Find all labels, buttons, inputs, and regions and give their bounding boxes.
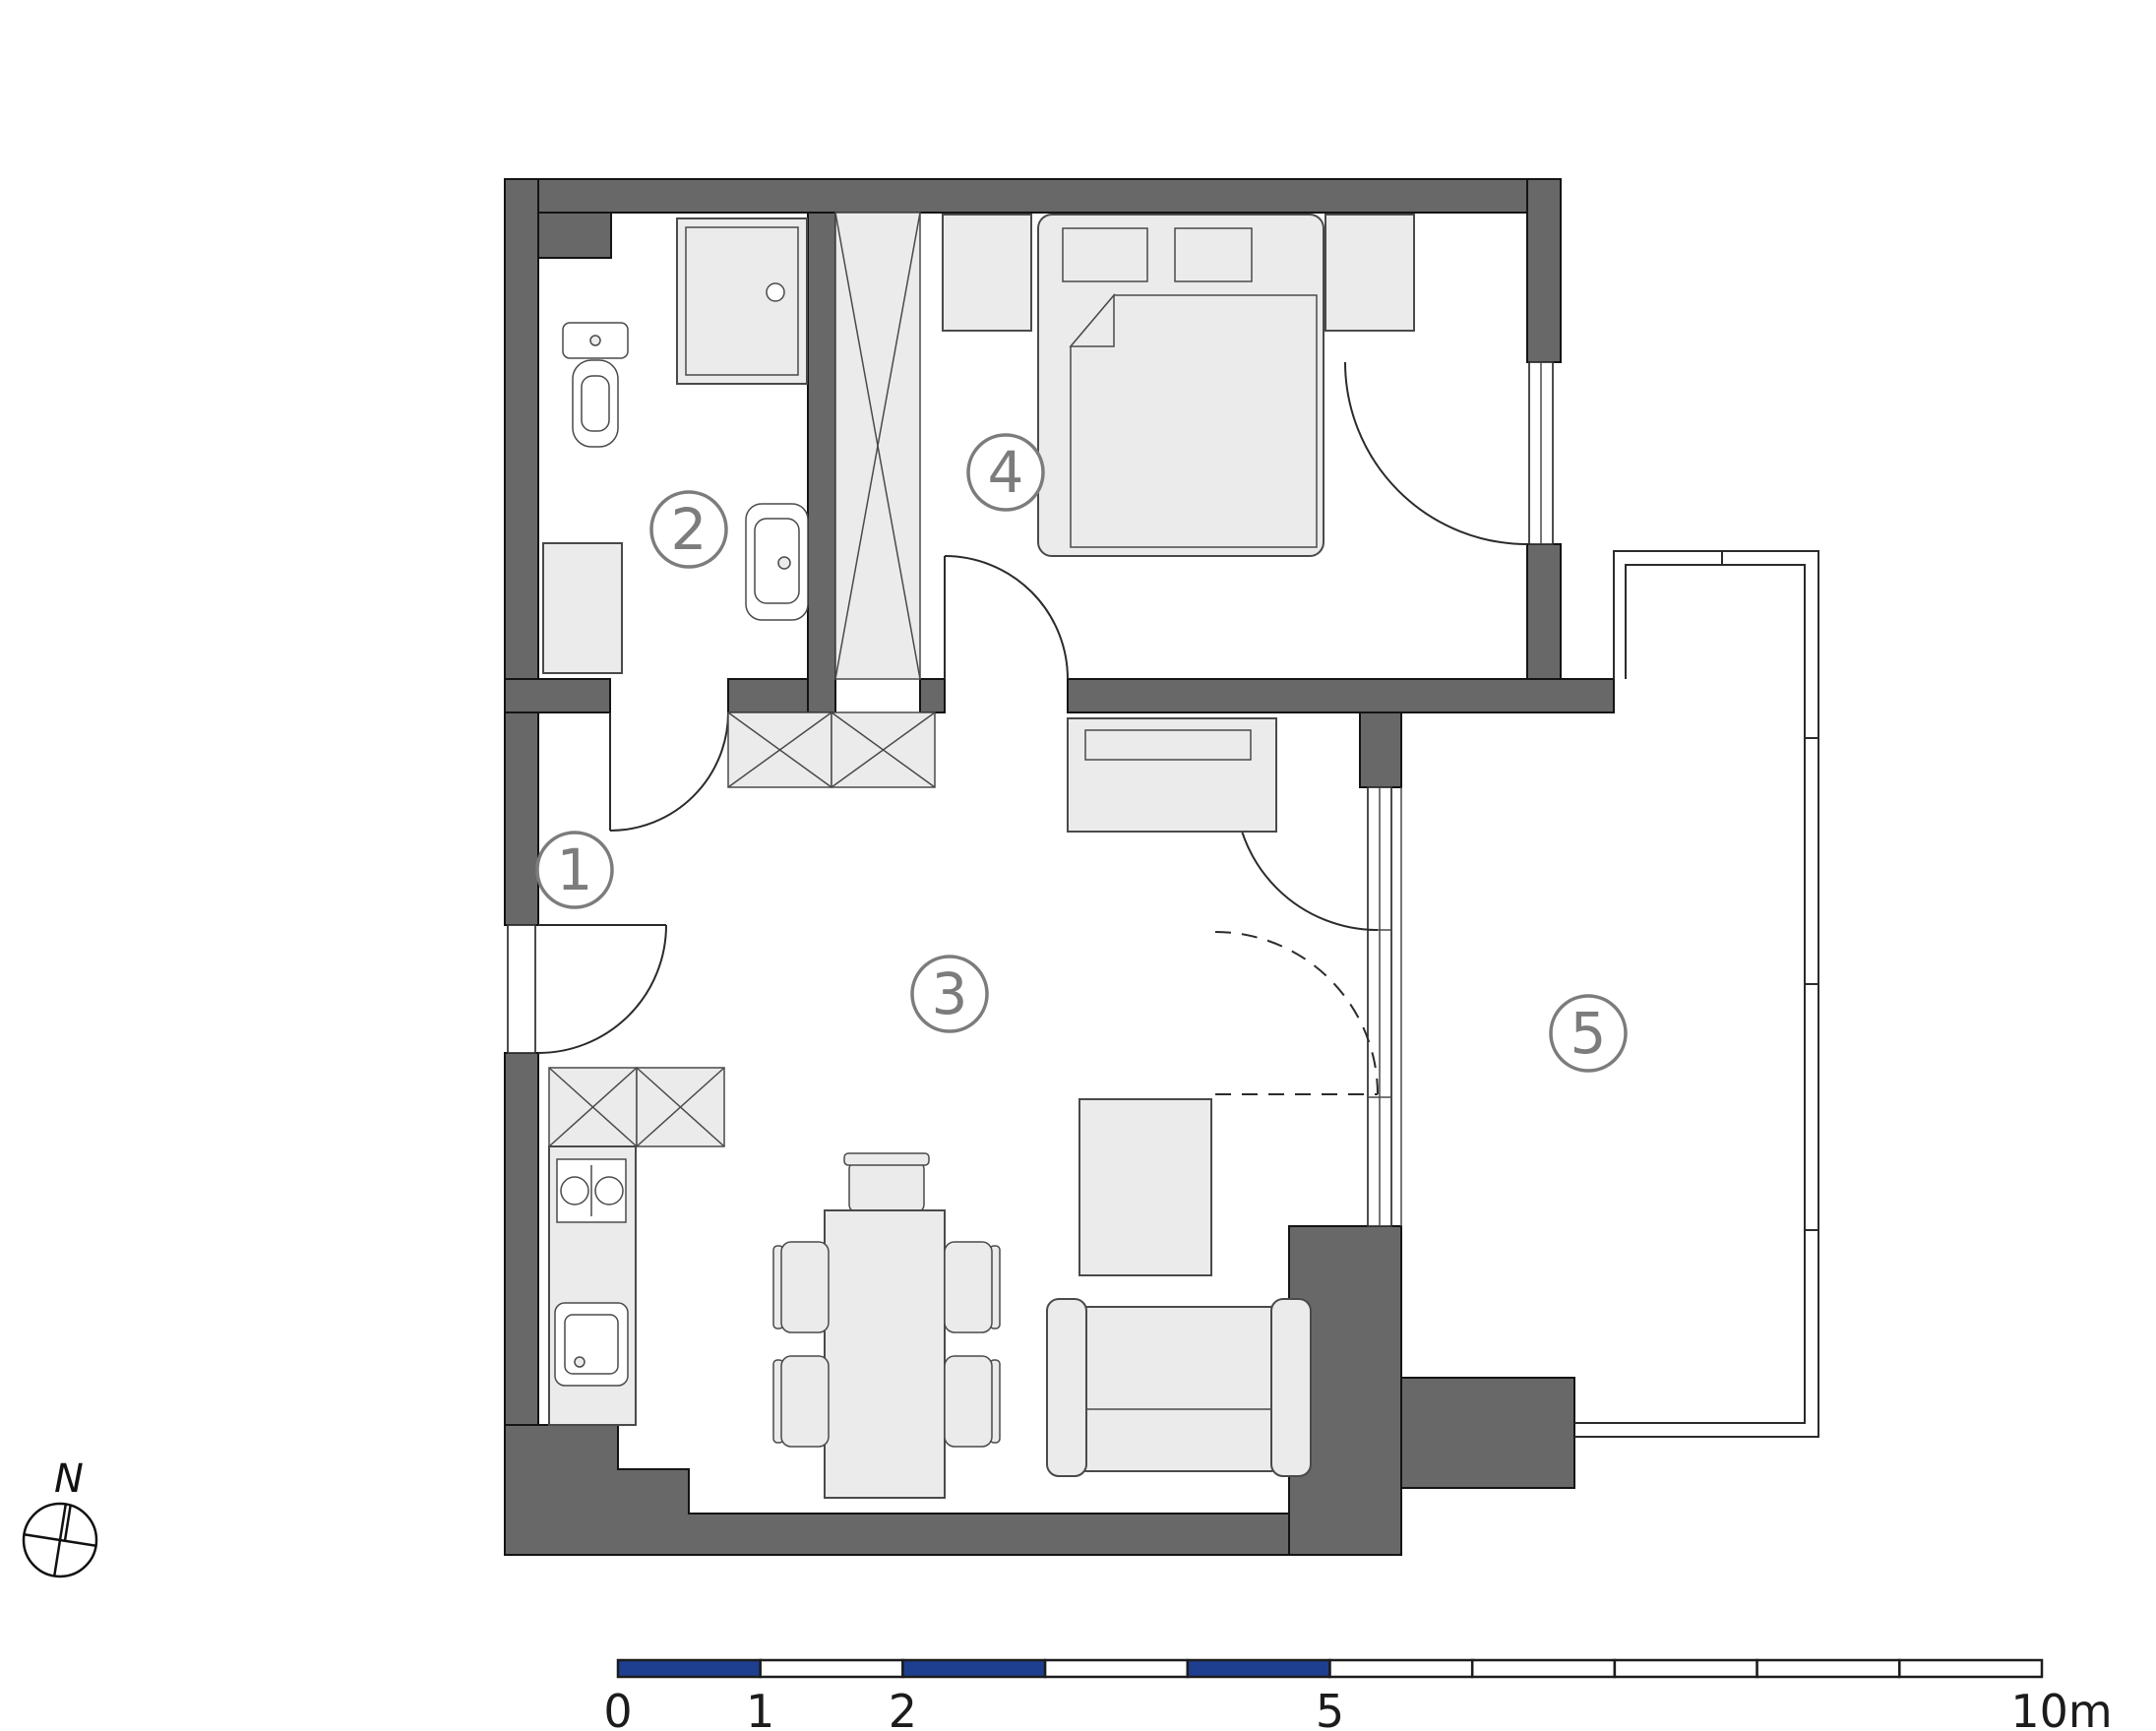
bedroom-balcony-window-frame [1529,362,1553,544]
cabinet-hatched-right [832,712,935,787]
scale-bar: 012510m [603,1660,2112,1731]
scale-segment [1188,1660,1330,1677]
wall-living-right-upper [1360,712,1401,787]
scale-segment [761,1660,903,1677]
wall-bottom-right-ext [1401,1378,1574,1488]
kitchen [549,1068,724,1425]
scale-label-1: 1 [746,1685,774,1731]
scale-segment [1472,1660,1615,1677]
floor-plan-drawing: 1 2 3 4 5 N 012510m [0,0,2156,1731]
upper-cabinets-hatched [549,1068,724,1146]
wall-bedroom-bottom-right [1068,679,1614,712]
scale-segment [902,1660,1045,1677]
wall-bath-bottom-left [505,679,610,712]
pillow-left [1063,228,1147,281]
room-number-4: 4 [988,439,1024,506]
room-number-1: 1 [557,836,593,903]
scale-segment [618,1660,761,1677]
chair [773,1242,829,1332]
scale-label-0: 0 [603,1685,632,1731]
bathroom-fixtures [543,218,808,673]
dining-set [773,1153,1000,1498]
scale-segment [1045,1660,1188,1677]
bedroom-door [945,556,1068,679]
chair [773,1356,829,1447]
room-badge-2: 2 [651,492,726,567]
floor-plan-page: 1 2 3 4 5 N 012510m [0,0,2156,1731]
nightstand-left [943,215,1031,331]
room-number-3: 3 [932,960,968,1027]
head-chair [844,1153,929,1212]
room-badge-5: 5 [1551,996,1626,1071]
scale-label-2: 2 [889,1685,917,1731]
pillow-right [1175,228,1252,281]
washing-machine [543,543,622,673]
wall-left-upper [505,179,538,925]
room-number-5: 5 [1571,1000,1607,1067]
hob [557,1159,626,1222]
sofa [1047,1299,1311,1476]
washbasin [746,504,808,620]
wall-bath-bottom-right [728,679,808,712]
wall-bath-niche [538,213,611,258]
room-badge-3: 3 [912,957,987,1031]
wall-top [505,179,1561,213]
wall-right-upper [1527,179,1561,362]
shower [677,218,807,384]
compass: N [19,1456,102,1581]
double-bed [1038,215,1324,556]
cabinet-hatched-left [728,712,832,787]
wardrobe-tall [835,213,920,679]
dining-table [825,1210,945,1498]
scale-segment [1330,1660,1473,1677]
living-balcony-door-dashed [1215,932,1378,1094]
living-balcony-window-frame [1368,787,1401,1226]
room-badge-4: 4 [968,435,1043,510]
kitchen-sink [555,1303,628,1386]
room-number-2: 2 [671,496,708,563]
sideboard [1068,718,1276,832]
scale-segment [1899,1660,2042,1677]
scale-segment [1757,1660,1900,1677]
toilet [563,323,628,447]
wall-right-mid [1527,544,1561,679]
coffee-table [1079,1099,1211,1275]
scale-label-10m: 10m [2010,1685,2112,1731]
bathroom-door [610,712,728,831]
entrance-door [538,925,666,1053]
living-furniture [773,718,1311,1498]
bedroom-balcony-door [1345,362,1527,544]
chair [945,1242,1000,1332]
wall-bedroom-bottom-left [920,679,945,712]
room-badge-1: 1 [537,833,612,907]
entrance-door-frame [508,925,535,1053]
chair [945,1356,1000,1447]
wall-bath-divider [808,213,835,712]
nightstand-right [1325,215,1414,331]
scale-segment [1615,1660,1757,1677]
scale-label-5: 5 [1316,1685,1344,1731]
north-label: N [54,1456,84,1502]
